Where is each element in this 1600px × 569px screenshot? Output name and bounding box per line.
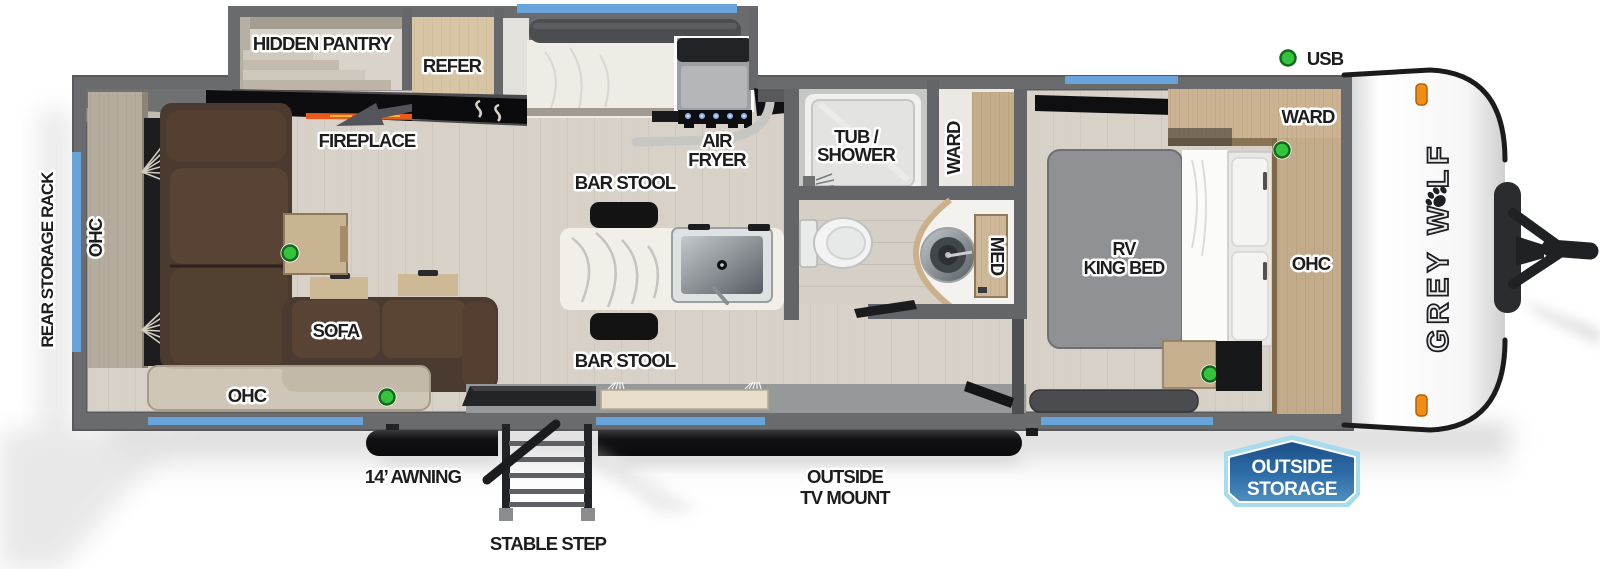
svg-text:STORAGE: STORAGE (1247, 479, 1337, 500)
svg-text:MED: MED (987, 237, 1008, 276)
svg-text:SHOWER: SHOWER (817, 144, 895, 165)
svg-text:AIR: AIR (702, 130, 732, 151)
svg-text:OUTSIDE: OUTSIDE (807, 466, 883, 487)
svg-text:USB: USB (1307, 48, 1344, 69)
svg-text:FRYER: FRYER (688, 149, 746, 170)
svg-text:OHC: OHC (1292, 253, 1331, 274)
svg-text:WARD: WARD (943, 121, 964, 174)
svg-text:OHC: OHC (228, 385, 267, 406)
svg-text:HIDDEN PANTRY: HIDDEN PANTRY (253, 33, 393, 54)
svg-text:FIREPLACE: FIREPLACE (319, 130, 416, 151)
svg-text:BAR STOOL: BAR STOOL (575, 172, 676, 193)
svg-text:RV: RV (1113, 239, 1137, 259)
svg-text:OHC: OHC (85, 218, 106, 257)
svg-text:KING BED: KING BED (1084, 258, 1166, 278)
svg-text:OUTSIDE: OUTSIDE (1252, 457, 1333, 478)
svg-text:REAR STORAGE RACK: REAR STORAGE RACK (38, 171, 57, 348)
svg-text:TV MOUNT: TV MOUNT (800, 487, 891, 508)
svg-text:STABLE STEP: STABLE STEP (490, 533, 607, 554)
svg-text:REFER: REFER (423, 55, 482, 76)
svg-text:BAR STOOL: BAR STOOL (575, 350, 676, 371)
svg-text:SOFA: SOFA (313, 320, 360, 341)
svg-text:WARD: WARD (1282, 106, 1335, 127)
svg-text:GREY W LF: GREY W LF (1422, 141, 1455, 352)
svg-text:14’ AWNING: 14’ AWNING (365, 466, 462, 487)
